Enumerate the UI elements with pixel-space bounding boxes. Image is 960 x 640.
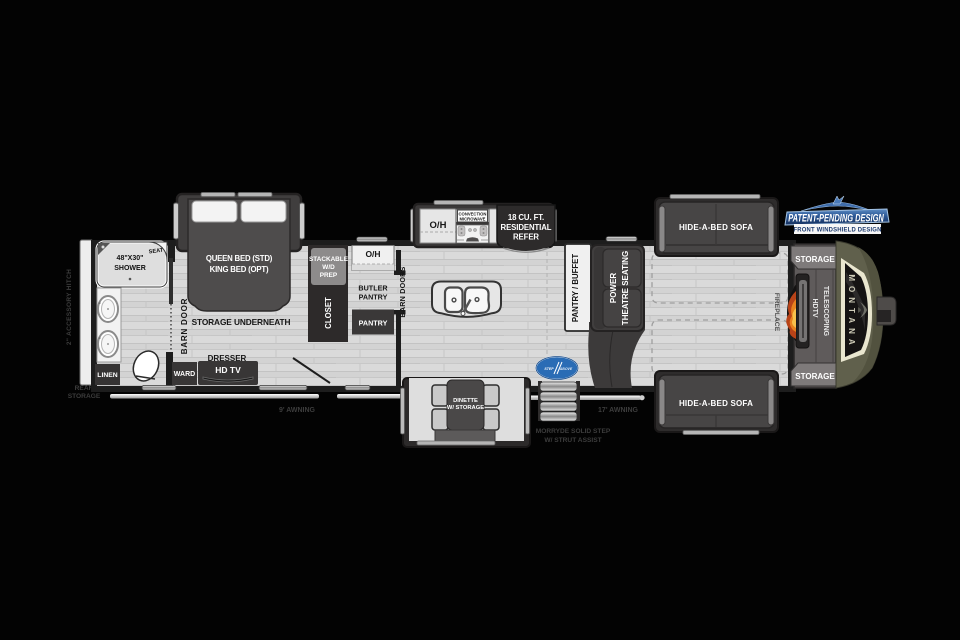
svg-text:FIREPLACE: FIREPLACE bbox=[773, 293, 780, 332]
svg-text:CLOSET: CLOSET bbox=[324, 297, 333, 329]
svg-text:MORRYDE SOLID STEP: MORRYDE SOLID STEP bbox=[536, 428, 611, 435]
svg-text:STORAGE UNDERNEATH: STORAGE UNDERNEATH bbox=[192, 317, 291, 327]
svg-text:PATENT-PENDING DESIGN: PATENT-PENDING DESIGN bbox=[788, 211, 884, 224]
svg-text:MONTANA: MONTANA bbox=[847, 274, 856, 349]
svg-text:SHOWER: SHOWER bbox=[114, 265, 146, 272]
svg-text:W/D: W/D bbox=[322, 264, 335, 271]
svg-text:BARN DOOR: BARN DOOR bbox=[180, 298, 189, 355]
svg-text:BUTLER: BUTLER bbox=[358, 284, 388, 293]
svg-text:FRONT WINDSHIELD DESIGN: FRONT WINDSHIELD DESIGN bbox=[793, 226, 881, 233]
svg-text:PANTRY / BUFFET: PANTRY / BUFFET bbox=[571, 254, 580, 323]
svg-text:W/ STRUT ASSIST: W/ STRUT ASSIST bbox=[544, 437, 601, 444]
svg-text:9' AWNING: 9' AWNING bbox=[279, 407, 316, 414]
svg-text:PANTRY: PANTRY bbox=[359, 293, 388, 302]
svg-text:MICROWAVE: MICROWAVE bbox=[460, 217, 486, 222]
svg-text:BARN DOORS: BARN DOORS bbox=[398, 266, 407, 317]
svg-text:W/ STORAGE: W/ STORAGE bbox=[447, 405, 484, 411]
svg-text:REFER: REFER bbox=[513, 233, 539, 242]
svg-text:THEATRE SEATING: THEATRE SEATING bbox=[621, 251, 630, 325]
svg-text:HDTV: HDTV bbox=[811, 298, 818, 317]
svg-text:HIDE-A-BED SOFA: HIDE-A-BED SOFA bbox=[679, 399, 753, 408]
svg-text:QUEEN BED (STD): QUEEN BED (STD) bbox=[206, 254, 273, 263]
svg-text:ABOVE: ABOVE bbox=[559, 367, 573, 371]
svg-text:STACKABLE: STACKABLE bbox=[309, 256, 349, 263]
svg-text:HD TV: HD TV bbox=[215, 365, 241, 375]
svg-text:PANTRY: PANTRY bbox=[359, 319, 388, 328]
svg-text:18 CU. FT.: 18 CU. FT. bbox=[508, 213, 544, 222]
svg-text:TELESCOPING: TELESCOPING bbox=[822, 286, 829, 337]
svg-text:48"X30": 48"X30" bbox=[117, 255, 144, 262]
svg-text:O/H: O/H bbox=[430, 220, 447, 231]
svg-text:O/H: O/H bbox=[365, 249, 380, 259]
svg-text:2" ACCESSORY HITCH: 2" ACCESSORY HITCH bbox=[66, 269, 73, 345]
svg-text:DINETTE: DINETTE bbox=[453, 398, 478, 404]
svg-text:REAR: REAR bbox=[75, 385, 94, 392]
svg-text:WARD: WARD bbox=[174, 371, 195, 378]
svg-text:STORAGE: STORAGE bbox=[795, 255, 835, 264]
svg-text:STORAGE: STORAGE bbox=[795, 372, 835, 381]
svg-text:POWER: POWER bbox=[609, 273, 618, 303]
svg-text:STEP: STEP bbox=[544, 367, 554, 371]
svg-text:STORAGE: STORAGE bbox=[68, 393, 101, 400]
svg-text:PREP: PREP bbox=[320, 272, 338, 279]
svg-text:RESIDENTIAL: RESIDENTIAL bbox=[501, 223, 552, 232]
svg-text:17' AWNING: 17' AWNING bbox=[598, 407, 638, 414]
svg-text:LINEN: LINEN bbox=[97, 372, 117, 379]
svg-text:HIDE-A-BED SOFA: HIDE-A-BED SOFA bbox=[679, 223, 753, 232]
svg-text:KING BED (OPT): KING BED (OPT) bbox=[210, 265, 269, 274]
